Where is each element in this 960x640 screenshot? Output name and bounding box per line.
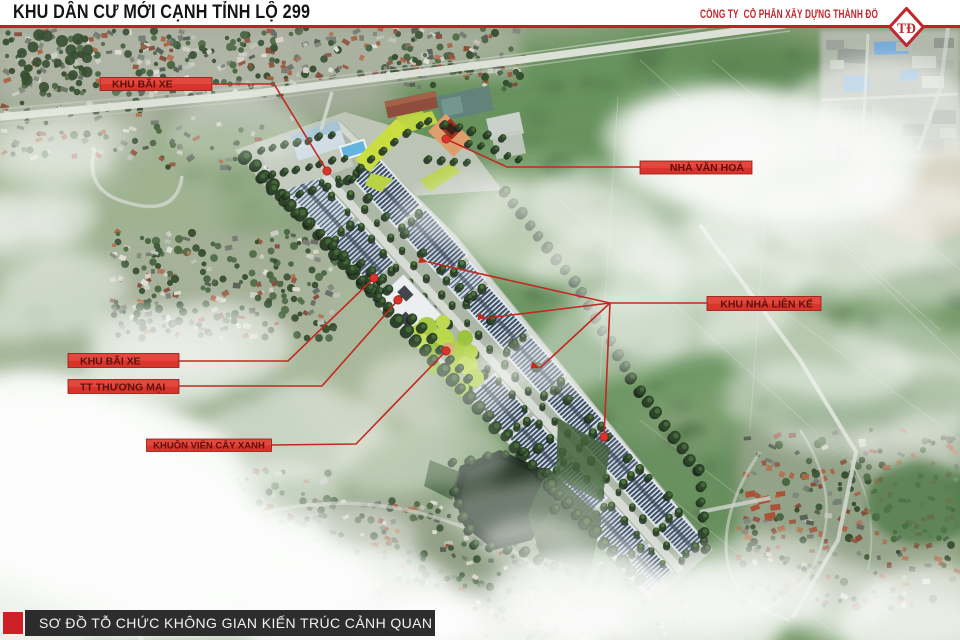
svg-text:TĐ: TĐ xyxy=(897,20,916,37)
svg-text:NHÀ VĂN HOÁ: NHÀ VĂN HOÁ xyxy=(670,161,745,174)
svg-text:KHU BÃI XE: KHU BÃI XE xyxy=(80,354,141,367)
svg-text:KHUÔN VIÊN CÂY XANH: KHUÔN VIÊN CÂY XANH xyxy=(153,439,265,451)
svg-text:TT THƯƠNG MẠI: TT THƯƠNG MẠI xyxy=(80,381,165,393)
svg-text:KHU NHÀ LIÊN KẾ: KHU NHÀ LIÊN KẾ xyxy=(720,297,813,310)
svg-text:KHU BÃI XE: KHU BÃI XE xyxy=(112,77,173,90)
